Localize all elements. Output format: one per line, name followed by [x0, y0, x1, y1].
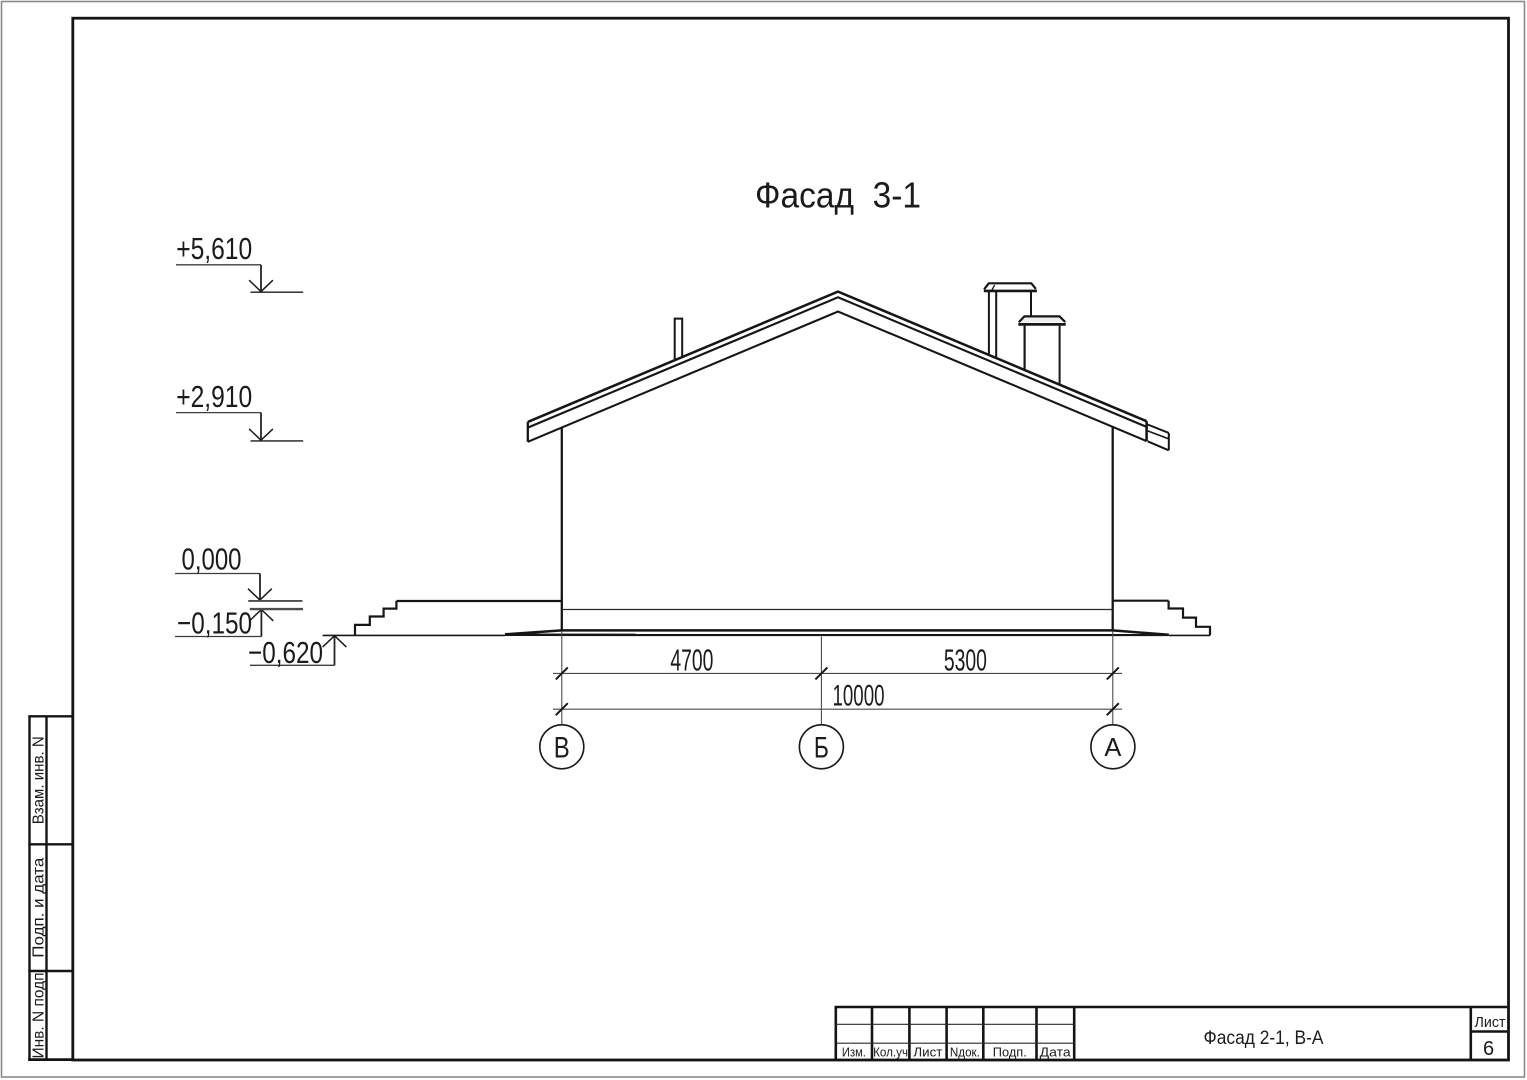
svg-text:Изм.: Изм. [842, 1045, 866, 1060]
svg-text:Подп.: Подп. [993, 1045, 1027, 1060]
svg-text:Подп. и дата: Подп. и дата [30, 857, 47, 957]
svg-text:Инв. N подп: Инв. N подп [30, 973, 47, 1059]
svg-text:0,000: 0,000 [182, 541, 242, 576]
svg-text:−0,150: −0,150 [177, 605, 252, 640]
svg-text:+5,610: +5,610 [176, 231, 252, 266]
svg-text:Фасад 3-1: Фасад 3-1 [755, 175, 921, 216]
svg-text:Nдок.: Nдок. [950, 1045, 980, 1060]
svg-text:В: В [554, 731, 570, 764]
svg-text:+2,910: +2,910 [176, 379, 252, 414]
svg-text:Фасад 2-1, В-А: Фасад 2-1, В-А [1204, 1027, 1324, 1049]
svg-text:А: А [1104, 732, 1122, 762]
svg-text:Б: Б [814, 731, 829, 764]
svg-text:Лист: Лист [1475, 1015, 1506, 1031]
svg-text:10000: 10000 [833, 679, 885, 712]
svg-text:5300: 5300 [944, 643, 987, 678]
svg-text:Взам. инв. N: Взам. инв. N [30, 736, 47, 824]
svg-text:Кол.уч: Кол.уч [873, 1045, 908, 1060]
svg-text:−0,620: −0,620 [248, 635, 323, 670]
svg-text:Дата: Дата [1040, 1045, 1072, 1060]
svg-text:Лист: Лист [913, 1045, 942, 1060]
svg-text:4700: 4700 [670, 643, 713, 678]
svg-text:6: 6 [1483, 1038, 1494, 1060]
